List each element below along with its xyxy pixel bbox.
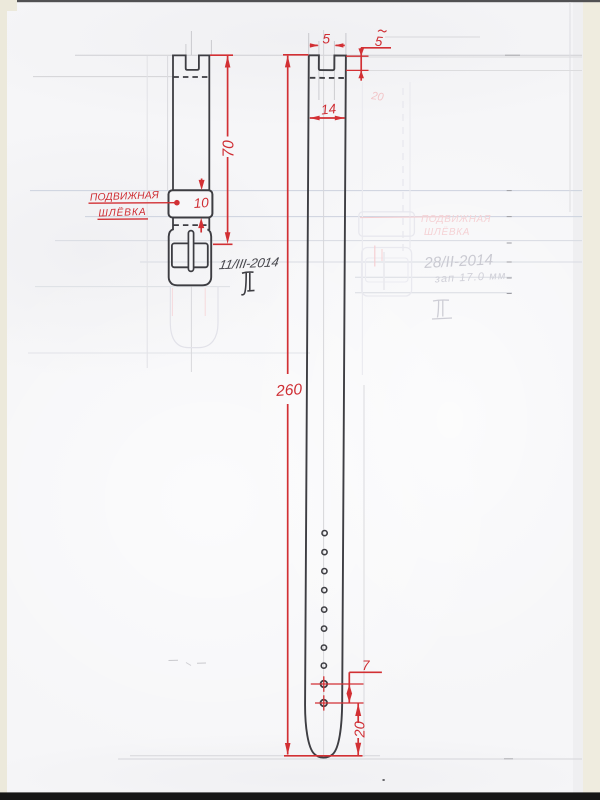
- svg-text:70: 70: [221, 140, 238, 158]
- svg-text:10: 10: [193, 195, 210, 211]
- svg-text:ПОДВИЖНАЯ: ПОДВИЖНАЯ: [421, 214, 491, 225]
- svg-text:7: 7: [362, 658, 370, 673]
- svg-text:20: 20: [370, 90, 386, 104]
- svg-text:260: 260: [275, 381, 303, 400]
- svg-text:5: 5: [323, 32, 331, 47]
- svg-text:ШЛЁВКА: ШЛЁВКА: [98, 206, 146, 220]
- svg-text:14: 14: [320, 101, 337, 117]
- svg-text:20: 20: [353, 721, 369, 738]
- svg-text:ШЛЁВКА: ШЛЁВКА: [424, 226, 470, 238]
